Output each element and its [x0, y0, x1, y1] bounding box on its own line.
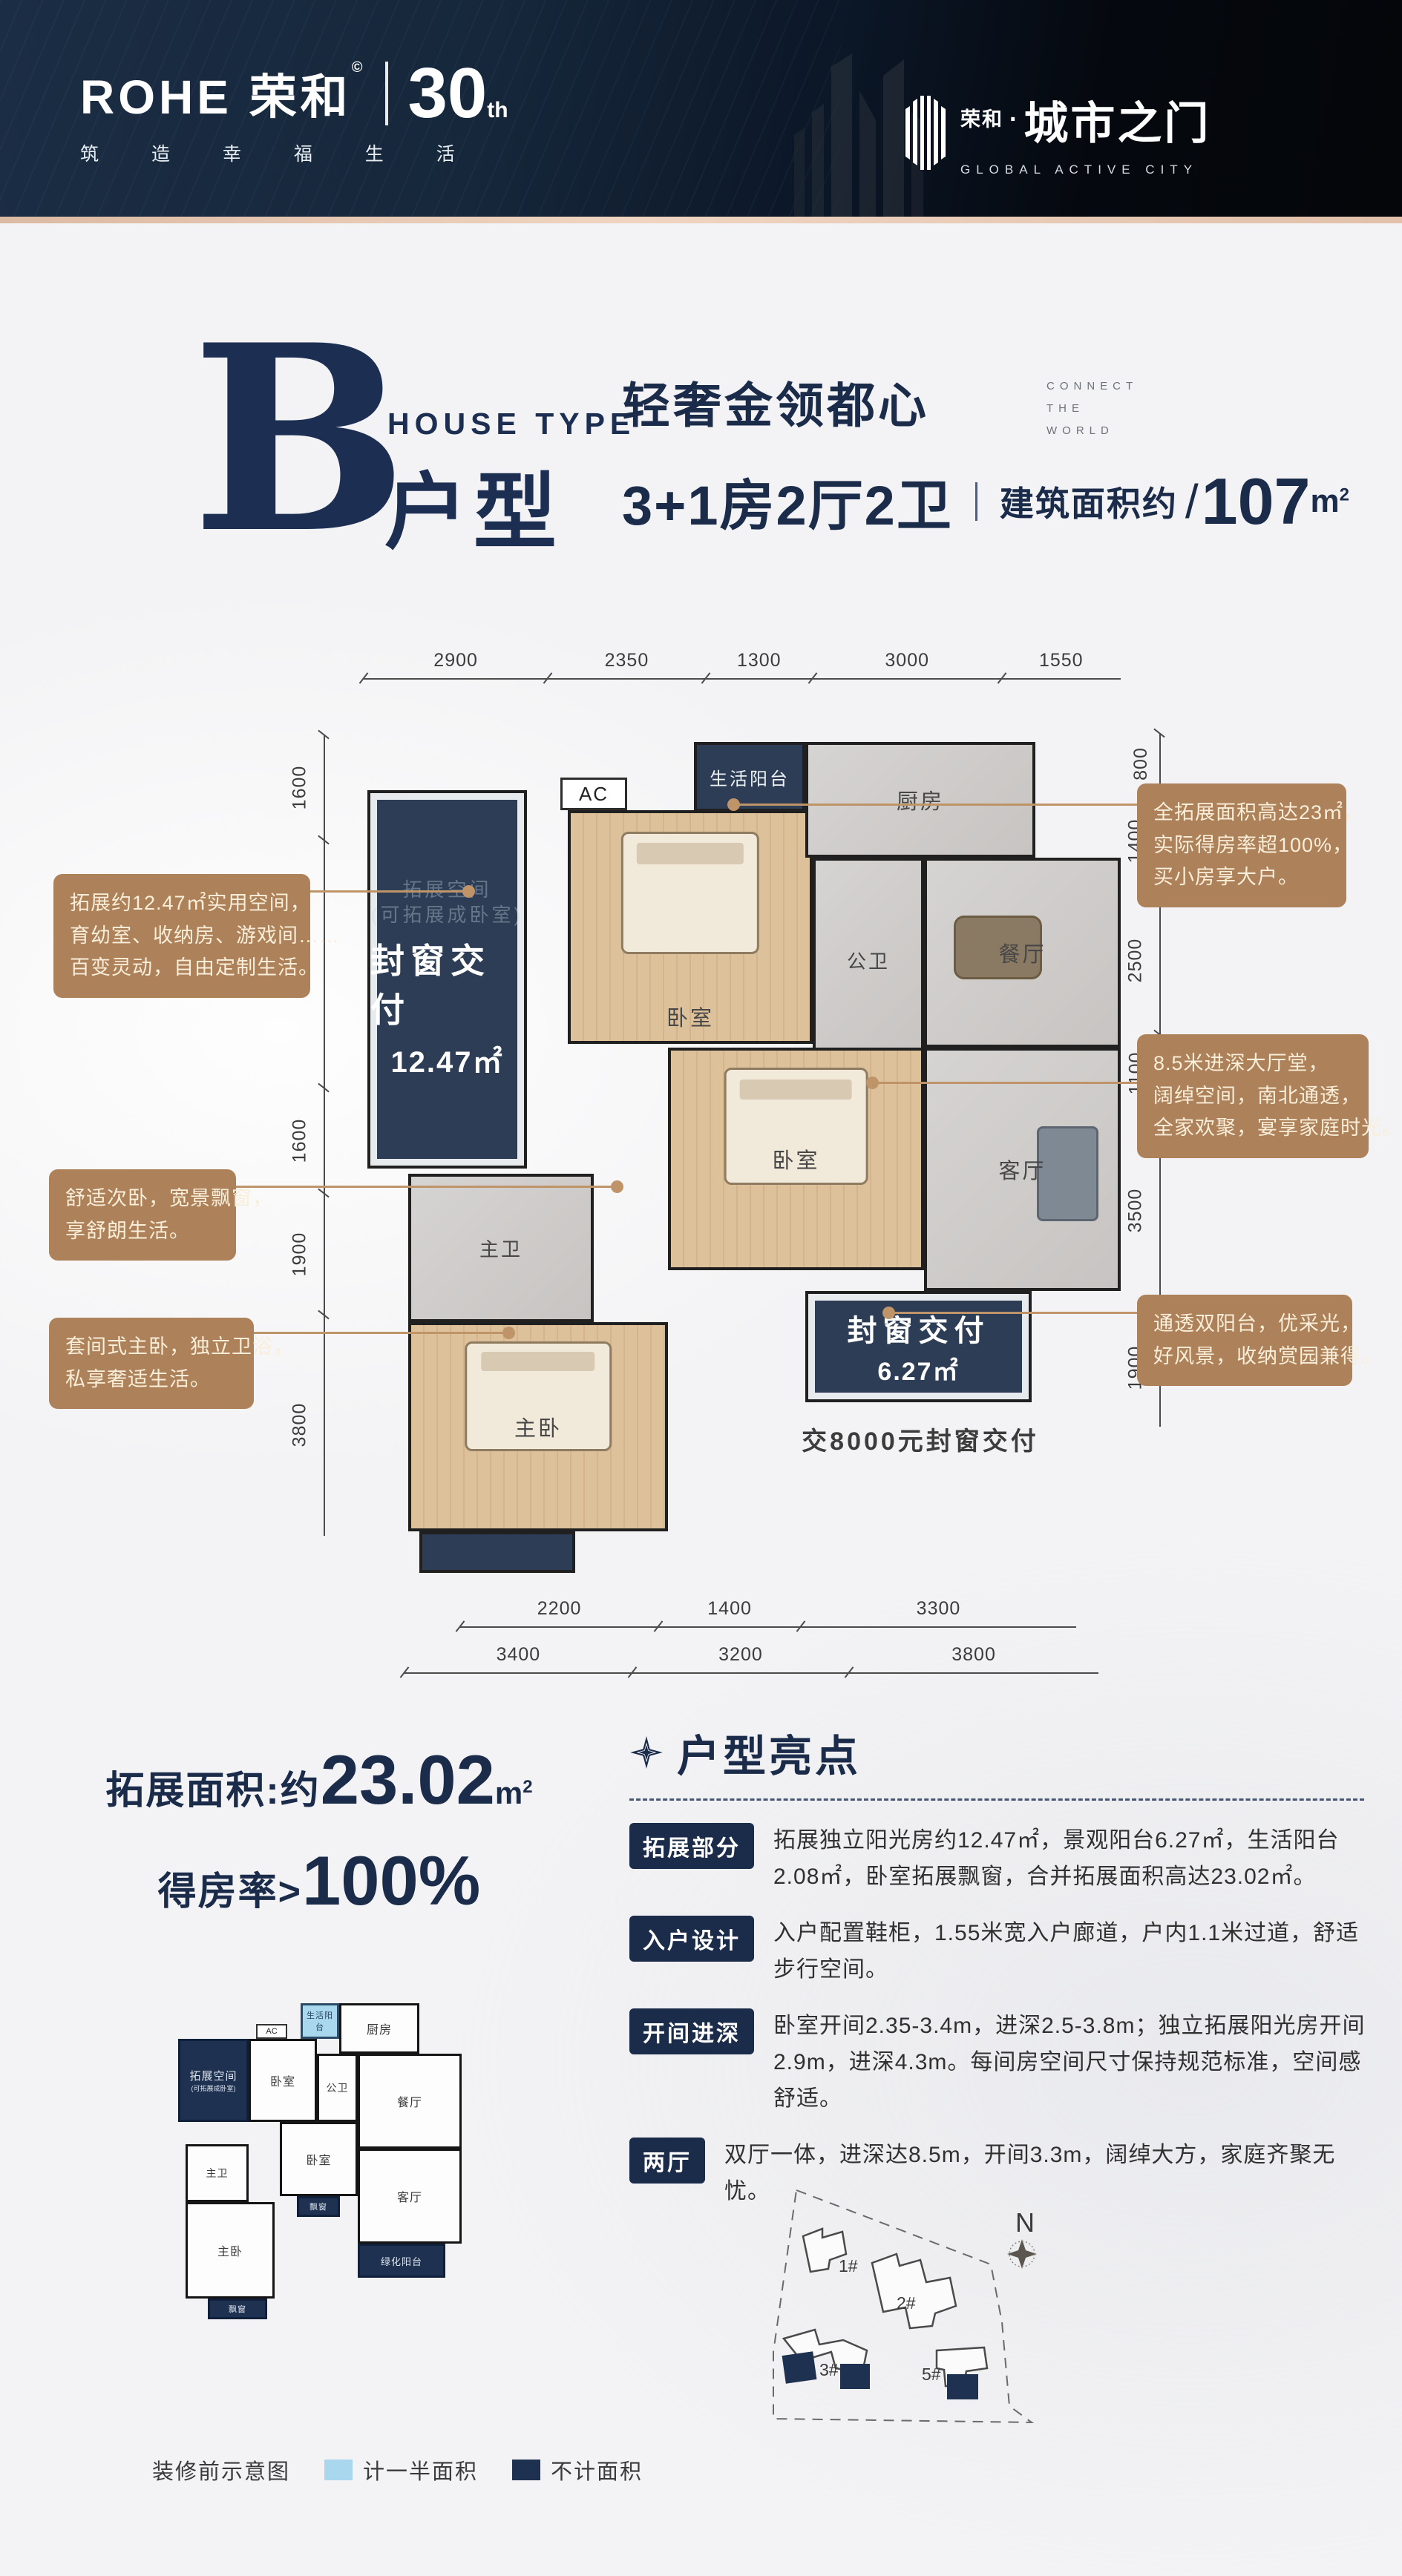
efficiency-stat: 得房率> 100% [96, 1846, 542, 1916]
sealed-sunroom-title: 封窗交付 [370, 934, 524, 1032]
highlight-item: 入户设计 入户配置鞋柜，1.55米宽入户廊道，户内1.1米过道，舒适步行空间。 [629, 1916, 1372, 1988]
mini-master-bedroom: 主卧 [186, 2202, 275, 2299]
room-bedroom2: 卧室 [668, 1048, 924, 1270]
room-dining: 餐厅 [924, 858, 1121, 1048]
unit-spec: 3+1房2厅2卫 建筑面积约 / 107 m2 [622, 461, 1349, 541]
house-type-en: HOUSE TYPE [387, 407, 635, 441]
project-name-en: GLOBAL ACTIVE CITY [960, 162, 1211, 177]
area-slash: / [1185, 474, 1199, 529]
developer-logo: ROHE 荣和© 30th 筑 造 幸 福 生 活 [80, 58, 508, 166]
dimensions-bottom-inner: 220014003300 [460, 1597, 1076, 1628]
callout-double-balcony: 通透双阳台，优采光，好风景，收纳赏园兼得。 [1137, 1295, 1352, 1386]
stats-block: 拓展面积:约 23.02 m2 得房率> 100% [96, 1745, 542, 1916]
project-name: 城市之门 [1023, 88, 1211, 152]
site-building-2-label: 2# [897, 2293, 916, 2313]
callout-hall-depth: 8.5米进深大厅堂，阔绰空间，南北通透，全家欢聚，宴享家庭时光。 [1137, 1034, 1369, 1158]
site-plan: 1# 2# 3# 5# N [772, 2174, 1291, 2545]
spec-divider [975, 482, 977, 521]
mini-floor-plan: 拓展空间 (可拓展成卧室) AC 卧室 公卫 生活阳台 厨房 餐厅 客厅 卧室 … [111, 1996, 527, 2411]
mini-bay-window-1: 飘窗 [297, 2196, 340, 2217]
site-building-5-label: 5# [922, 2365, 941, 2384]
room-service-balcony: 生活阳台 [694, 742, 805, 812]
leader-line-6 [888, 1312, 1139, 1314]
mini-bedroom2: 卧室 [280, 2122, 358, 2196]
house-type-letter: B [191, 312, 408, 568]
anniversary-30th: 30th [407, 58, 508, 129]
callout-second-bedroom: 舒适次卧，宽景飘窗，享舒朗生活。 [49, 1169, 236, 1261]
room-kitchen: 厨房 [805, 742, 1035, 858]
area-value: 107 [1202, 469, 1311, 534]
mini-master-bath: 主卫 [186, 2144, 249, 2202]
highlight-item: 开间进深 卧室开间2.35-3.4m，进深2.5-3.8m；独立拓展阳光房开间2… [629, 2008, 1372, 2117]
room-master-bedroom: 主卧 [408, 1322, 668, 1531]
developer-logo-name: ROHE 荣和© [80, 59, 366, 128]
bed-icon [621, 832, 759, 955]
expand-area-stat: 拓展面积:约 23.02 m2 [96, 1745, 542, 1815]
sealed-sunroom-ghost: 拓展空间(可拓展成卧室) [371, 878, 523, 928]
room-sealed-balcony: 封窗交付 6.27㎡ [805, 1291, 1032, 1402]
sealed-balcony-note: 交8000元封窗交付 [790, 1421, 1050, 1457]
mini-living: 客厅 [358, 2149, 462, 2244]
legend-no-area: 不计面积 [512, 2454, 643, 2485]
site-building-3-label: 3# [819, 2360, 839, 2379]
room-count: 3+1房2厅2卫 [622, 461, 953, 541]
dimensions-top: 29002350130030001550 [364, 648, 1121, 680]
mini-kitchen: 厨房 [339, 2003, 419, 2054]
compass-north-label: N [1015, 2207, 1035, 2238]
sealed-balcony-area: 6.27㎡ [877, 1351, 959, 1387]
developer-slogan: 筑 造 幸 福 生 活 [80, 139, 508, 166]
mini-ac-box: AC [256, 2024, 287, 2039]
highlights-section: 户型亮点 拓展部分 拓展独立阳光房约12.47㎡，景观阳台6.27㎡，生活阳台2… [629, 1721, 1372, 2230]
room-sealed-sunroom: 拓展空间(可拓展成卧室) 封窗交付 12.47㎡ [367, 790, 527, 1169]
mini-service-balcony: 生活阳台 [301, 2003, 339, 2039]
project-logo: 荣和 · 城市之门 GLOBAL ACTIVE CITY [904, 88, 1211, 177]
house-type-cn: 户型 [384, 445, 563, 565]
dimensions-bottom-outer: 340032003800 [404, 1643, 1098, 1674]
callout-master-suite: 套间式主卧，独立卫浴，私享奢适生活。 [49, 1318, 254, 1409]
header-accent-strip [0, 217, 1402, 223]
half-area-swatch [324, 2460, 353, 2480]
leader-line-5 [872, 1082, 1139, 1084]
room-master-bath: 主卫 [408, 1174, 594, 1322]
tagline: 轻奢金领都心 [622, 367, 929, 436]
callout-sunroom: 拓展约12.47㎡实用空间，育幼室、收纳房、游戏间……百变灵动，自由定制生活。 [53, 874, 310, 998]
room-living: 客厅 [924, 1048, 1121, 1291]
registered-mark: © [352, 59, 367, 76]
connect-the-world: CONNECTTHEWORLD [1046, 375, 1138, 442]
mini-bay-window-2: 飘窗 [208, 2299, 267, 2319]
highlights-title: 户型亮点 [677, 1721, 861, 1784]
mini-green-balcony: 绿化阳台 [358, 2244, 445, 2278]
logo-divider [385, 62, 388, 125]
project-name-prefix: 荣和 [960, 108, 1003, 131]
legend-half-area: 计一半面积 [324, 2454, 478, 2485]
leader-line-2 [223, 1186, 618, 1188]
room-guest-bath: 公卫 [813, 858, 924, 1062]
mini-bedroom1: 卧室 [249, 2039, 317, 2122]
legend: 装修前示意图 计一半面积 不计面积 [152, 2454, 643, 2485]
sealed-sunroom-area: 12.47㎡ [390, 1038, 503, 1081]
dashed-divider [629, 1798, 1364, 1801]
no-area-swatch [512, 2460, 540, 2480]
area-label: 建筑面积约 [1000, 477, 1178, 526]
leader-line-1 [297, 890, 469, 893]
highlights-list: 拓展部分 拓展独立阳光房约12.47㎡，景观阳台6.27㎡，生活阳台2.08㎡，… [629, 1823, 1372, 2209]
mini-dining: 餐厅 [358, 2054, 462, 2149]
leader-line-3 [242, 1332, 509, 1334]
header-banner: ROHE 荣和© 30th 筑 造 幸 福 生 活 荣和 · 城市之门 GLOB… [0, 0, 1402, 217]
legend-caption: 装修前示意图 [152, 2454, 290, 2485]
floor-plan: 29002350130030001550 1600430016001900380… [312, 638, 1165, 1699]
project-name-dot: · [1009, 105, 1018, 134]
compass-icon [1007, 2239, 1037, 2269]
mini-guest-bath: 公卫 [317, 2054, 358, 2122]
bay-window-strip [419, 1531, 575, 1573]
dimensions-left: 16004300160019003800 [291, 735, 325, 1536]
mini-expand-space: 拓展空间 (可拓展成卧室) [178, 2039, 249, 2122]
ac-unit-box: AC [560, 778, 627, 810]
leader-line-4 [733, 804, 1139, 806]
gate-mark-icon [904, 96, 946, 170]
highlight-item: 拓展部分 拓展独立阳光房约12.47㎡，景观阳台6.27㎡，生活阳台2.08㎡，… [629, 1823, 1372, 1895]
site-building-1-label: 1# [839, 2256, 858, 2276]
area-unit: m2 [1310, 483, 1349, 520]
room-bedroom1: 卧室 [568, 810, 813, 1044]
star-icon [629, 1735, 664, 1770]
callout-expansion-area: 全拓展面积高达23㎡，实际得房率超100%，买小房享大户。 [1137, 783, 1346, 907]
